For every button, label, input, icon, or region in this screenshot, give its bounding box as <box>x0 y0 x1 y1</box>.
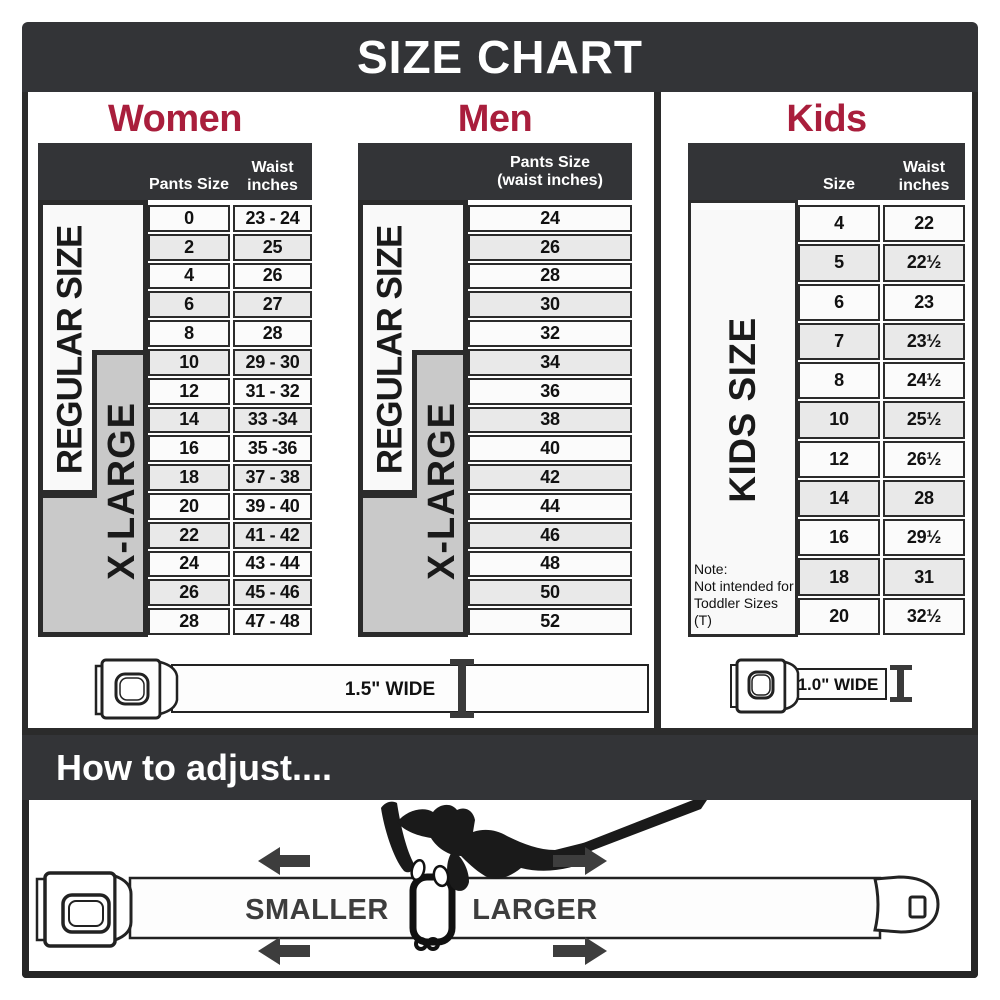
adult-belt-width-label: 1.5" WIDE <box>345 679 435 700</box>
men-heading: Men <box>358 96 632 142</box>
kids-waist-cell: 24½ <box>883 362 965 399</box>
kids-size-cell: 5 <box>798 244 880 281</box>
women-regular-label: REGULAR SIZE <box>51 226 90 475</box>
kids-waist-cell: 22 <box>883 205 965 242</box>
men-size-cell: 28 <box>468 263 632 290</box>
smaller-label: SMALLER <box>245 894 389 926</box>
kids-size-cell: 14 <box>798 480 880 517</box>
adult-belt-illustration: 1.5" WIDE <box>88 650 658 730</box>
adjust-heading-bar: How to adjust.... <box>22 735 978 800</box>
kids-size-cell: 20 <box>798 598 880 635</box>
women-waist-cell: 27 <box>233 291 312 318</box>
kids-waist-cell: 22½ <box>883 244 965 281</box>
women-col-waist: Waist inches <box>233 159 312 195</box>
men-size-cell: 44 <box>468 493 632 520</box>
seatbelt-buckle-icon <box>37 873 131 946</box>
men-xlarge-label: X-LARGE <box>421 402 463 580</box>
seatbelt-buckle-icon <box>731 660 798 712</box>
kids-waist-cell: 29½ <box>883 519 965 556</box>
men-size-cell: 46 <box>468 522 632 549</box>
women-waist-cell: 26 <box>233 263 312 290</box>
kids-size-category-box: KIDS SIZE Note: Not intended for Toddler… <box>688 200 798 637</box>
kids-size-cell: 4 <box>798 205 880 242</box>
arrow-left-icon <box>258 847 310 875</box>
adjust-heading: How to adjust.... <box>56 747 332 789</box>
women-waist-cell: 41 - 42 <box>233 522 312 549</box>
women-size-cell: 28 <box>148 608 230 635</box>
women-waist-cell: 25 <box>233 234 312 261</box>
section-divider <box>654 92 661 735</box>
women-xlarge-label: X-LARGE <box>101 402 143 580</box>
arrow-right-icon <box>553 937 607 965</box>
kids-size-label: KIDS SIZE <box>722 317 764 502</box>
women-waist-cell: 28 <box>233 320 312 347</box>
women-size-cell: 0 <box>148 205 230 232</box>
women-size-cell: 26 <box>148 579 230 606</box>
kids-waist-cell: 26½ <box>883 441 965 478</box>
women-waist-cell: 43 - 44 <box>233 551 312 578</box>
women-size-cell: 24 <box>148 551 230 578</box>
men-size-cell: 40 <box>468 435 632 462</box>
women-size-cell: 16 <box>148 435 230 462</box>
women-waist-cell: 31 - 32 <box>233 378 312 405</box>
kids-waist-cell: 23 <box>883 284 965 321</box>
men-size-cell: 24 <box>468 205 632 232</box>
men-table-header: Pants Size (waist inches) <box>358 143 632 200</box>
kids-col-waist: Waist inches <box>883 159 965 195</box>
women-waist-cell: 47 - 48 <box>233 608 312 635</box>
women-size-cell: 20 <box>148 493 230 520</box>
adjust-illustration-box: SMALLER LARGER <box>22 800 978 978</box>
women-waist-cell: 39 - 40 <box>233 493 312 520</box>
men-size-cell: 32 <box>468 320 632 347</box>
women-waist-cell: 35 -36 <box>233 435 312 462</box>
men-regular-label: REGULAR SIZE <box>371 226 410 475</box>
kids-size-cell: 16 <box>798 519 880 556</box>
men-size-cell: 26 <box>468 234 632 261</box>
adjust-belt-illustration: SMALLER LARGER <box>29 800 971 971</box>
kids-waist-cell: 28 <box>883 480 965 517</box>
women-size-cell: 12 <box>148 378 230 405</box>
women-size-cell: 6 <box>148 291 230 318</box>
kids-waist-cell: 31 <box>883 558 965 595</box>
kids-waist-cell: 32½ <box>883 598 965 635</box>
women-size-table: 023 - 24 225 426 627 828 1029 - 30 1231 … <box>148 205 312 635</box>
kids-belt-width-label: 1.0" WIDE <box>798 675 879 694</box>
women-heading: Women <box>38 96 312 142</box>
kids-note: Note: Not intended for Toddler Sizes (T) <box>694 561 795 629</box>
belt-end-tip <box>875 877 938 932</box>
women-size-cell: 14 <box>148 407 230 434</box>
men-size-cell: 36 <box>468 378 632 405</box>
kids-table-header: Size Waist inches <box>688 143 965 200</box>
men-size-cell: 52 <box>468 608 632 635</box>
kids-col-size: Size <box>798 176 880 194</box>
women-waist-cell: 45 - 46 <box>233 579 312 606</box>
men-size-cell: 34 <box>468 349 632 376</box>
men-size-cell: 42 <box>468 464 632 491</box>
arrow-left-icon <box>258 937 310 965</box>
women-size-cell: 8 <box>148 320 230 347</box>
seatbelt-buckle-icon <box>96 660 177 718</box>
page-title: SIZE CHART <box>357 30 643 84</box>
kids-size-cell: 6 <box>798 284 880 321</box>
men-size-category-graphic: REGULAR SIZE X-LARGE <box>358 200 468 637</box>
women-waist-cell: 33 -34 <box>233 407 312 434</box>
men-size-cell: 38 <box>468 407 632 434</box>
women-size-cell: 4 <box>148 263 230 290</box>
women-size-cell: 10 <box>148 349 230 376</box>
size-chart-page: SIZE CHART Women Men Kids Pants Size Wai… <box>0 0 1000 1000</box>
kids-size-cell: 18 <box>798 558 880 595</box>
men-size-cell: 30 <box>468 291 632 318</box>
kids-size-table: 422 522½ 623 723½ 824½ 1025½ 1226½ 1428 … <box>798 205 965 635</box>
belt-adjuster <box>413 877 452 949</box>
kids-size-cell: 7 <box>798 323 880 360</box>
women-size-cell: 22 <box>148 522 230 549</box>
women-waist-cell: 29 - 30 <box>233 349 312 376</box>
larger-label: LARGER <box>472 894 597 926</box>
women-size-cell: 18 <box>148 464 230 491</box>
women-waist-cell: 37 - 38 <box>233 464 312 491</box>
kids-heading: Kids <box>688 96 965 142</box>
kids-waist-cell: 25½ <box>883 401 965 438</box>
women-size-cell: 2 <box>148 234 230 261</box>
kids-size-cell: 12 <box>798 441 880 478</box>
women-size-category-graphic: REGULAR SIZE X-LARGE <box>38 200 148 637</box>
men-size-table: 24 26 28 30 32 34 36 38 40 42 44 46 48 5… <box>468 205 632 635</box>
kids-belt-illustration: 1.0" WIDE <box>726 653 931 718</box>
kids-waist-cell: 23½ <box>883 323 965 360</box>
title-bar: SIZE CHART <box>22 22 978 92</box>
men-size-cell: 48 <box>468 551 632 578</box>
women-waist-cell: 23 - 24 <box>233 205 312 232</box>
women-table-header: Pants Size Waist inches <box>38 143 312 200</box>
i-beam-width-marker-icon <box>890 665 912 702</box>
kids-size-cell: 10 <box>798 401 880 438</box>
women-col-pants-size: Pants Size <box>148 176 230 194</box>
men-size-cell: 50 <box>468 579 632 606</box>
kids-size-cell: 8 <box>798 362 880 399</box>
men-col-pants-size: Pants Size (waist inches) <box>468 143 632 200</box>
